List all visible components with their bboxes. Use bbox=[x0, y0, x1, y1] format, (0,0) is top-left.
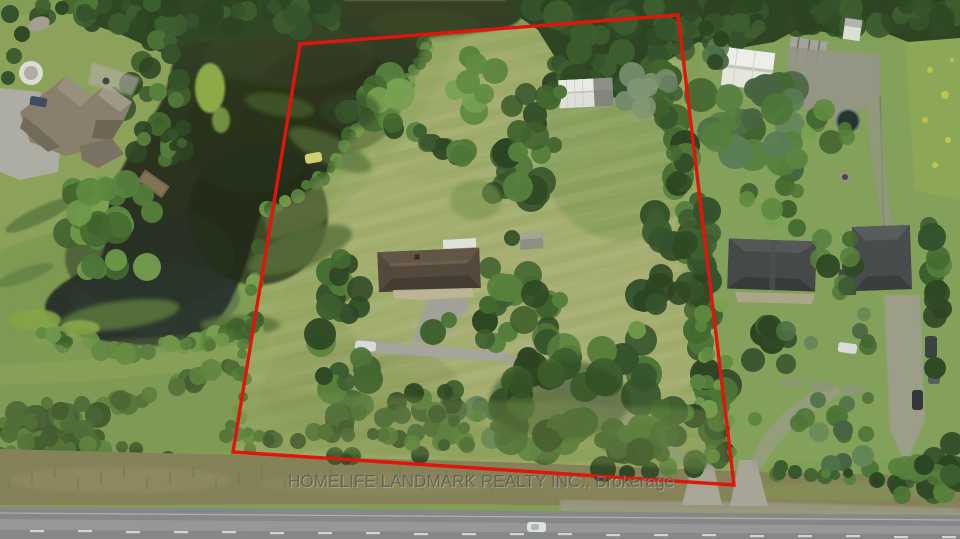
svg-text:HOMELIFE LANDMARK REALTY INC.,: HOMELIFE LANDMARK REALTY INC., Brokerage bbox=[288, 471, 674, 491]
